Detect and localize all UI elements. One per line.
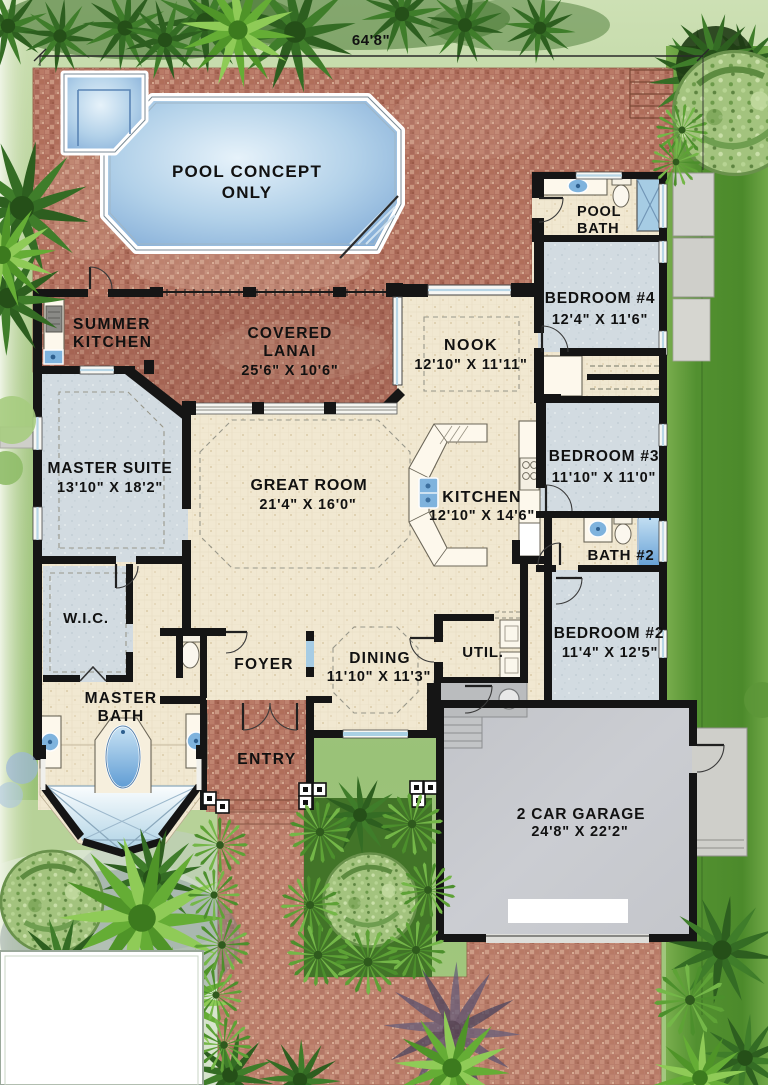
svg-text:2 CAR GARAGE: 2 CAR GARAGE	[517, 806, 645, 823]
svg-text:11'10" X 11'3": 11'10" X 11'3"	[327, 669, 431, 685]
svg-text:BATH: BATH	[577, 221, 619, 237]
svg-text:POOL CONCEPT: POOL CONCEPT	[172, 162, 322, 181]
svg-text:ENTRY: ENTRY	[237, 751, 296, 768]
svg-text:25'6" X 10'6": 25'6" X 10'6"	[241, 363, 338, 379]
svg-text:12'4" X 11'6": 12'4" X 11'6"	[552, 312, 648, 328]
svg-text:GREAT ROOM: GREAT ROOM	[250, 477, 367, 494]
svg-text:KITCHEN: KITCHEN	[442, 489, 522, 506]
svg-text:13'10" X 18'2": 13'10" X 18'2"	[57, 480, 163, 496]
svg-text:DINING: DINING	[349, 650, 410, 667]
svg-text:POOL: POOL	[577, 204, 621, 220]
svg-text:UTIL.: UTIL.	[462, 644, 504, 661]
svg-text:BEDROOM #3: BEDROOM #3	[549, 448, 660, 465]
svg-text:11'10" X 11'0": 11'10" X 11'0"	[552, 470, 656, 486]
svg-text:ONLY: ONLY	[222, 183, 272, 202]
svg-text:MASTER: MASTER	[85, 690, 158, 707]
svg-text:MASTER SUITE: MASTER SUITE	[48, 460, 173, 477]
svg-text:21'4" X 16'0": 21'4" X 16'0"	[259, 497, 356, 513]
svg-text:BEDROOM #2: BEDROOM #2	[554, 625, 665, 642]
svg-text:FOYER: FOYER	[234, 656, 293, 673]
svg-text:BEDROOM #4: BEDROOM #4	[545, 290, 656, 307]
svg-text:NOOK: NOOK	[444, 337, 498, 354]
svg-text:SUMMER: SUMMER	[73, 316, 151, 333]
svg-text:BATH #2: BATH #2	[588, 547, 655, 564]
svg-text:COVERED: COVERED	[247, 325, 332, 342]
svg-text:12'10" X 14'6": 12'10" X 14'6"	[429, 508, 535, 524]
svg-text:LANAI: LANAI	[263, 343, 316, 360]
svg-text:BATH: BATH	[98, 708, 145, 725]
svg-text:11'4" X 12'5": 11'4" X 12'5"	[562, 645, 658, 661]
svg-text:24'8" X 22'2": 24'8" X 22'2"	[531, 824, 628, 840]
svg-text:W.I.C.: W.I.C.	[63, 610, 109, 627]
svg-text:KITCHEN: KITCHEN	[73, 334, 152, 351]
svg-text:64'8": 64'8"	[352, 32, 390, 49]
svg-text:12'10" X 11'11": 12'10" X 11'11"	[414, 357, 527, 373]
